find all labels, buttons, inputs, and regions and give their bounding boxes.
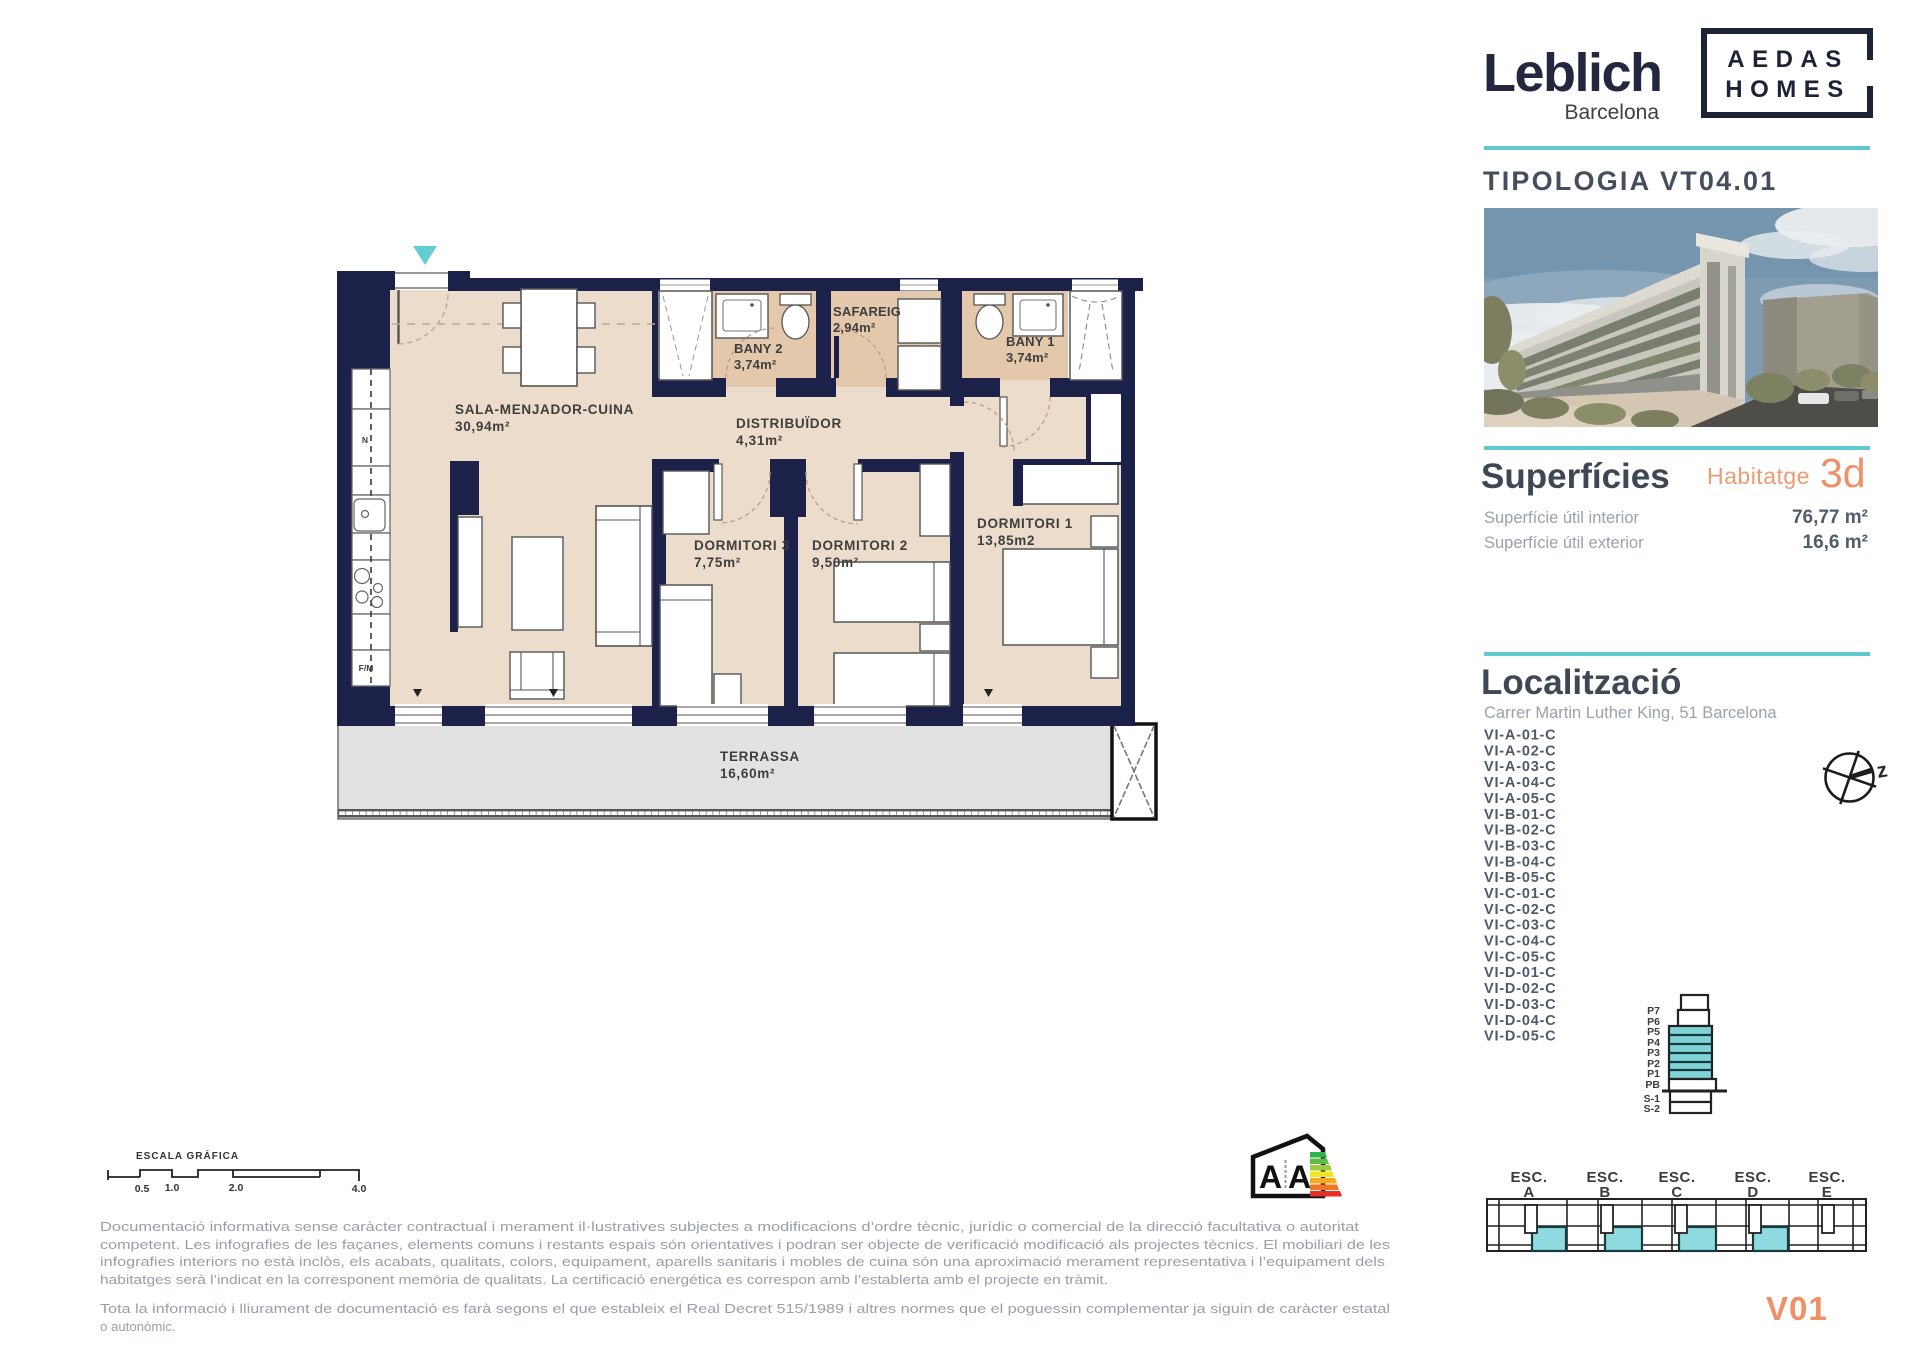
svg-text:VI-D-03-C: VI-D-03-C (1484, 997, 1556, 1013)
svg-text:o autonòmic.: o autonòmic. (100, 1319, 176, 1334)
svg-text:Barcelona: Barcelona (1564, 101, 1659, 124)
svg-text:F/M: F/M (359, 663, 374, 673)
svg-text:DISTRIBUÏDOR: DISTRIBUÏDOR (736, 416, 842, 431)
svg-text:1.0: 1.0 (165, 1182, 180, 1194)
svg-text:3d: 3d (1820, 450, 1866, 496)
svg-text:13,85m2: 13,85m2 (977, 533, 1035, 548)
svg-text:Documentació informativa sense: Documentació informativa sense caràcter … (100, 1219, 1359, 1234)
svg-text:S-2: S-2 (1644, 1103, 1661, 1115)
svg-text:VI-D-01-C: VI-D-01-C (1484, 965, 1556, 981)
svg-text:VI-A-02-C: VI-A-02-C (1484, 743, 1556, 759)
svg-text:VI-B-02-C: VI-B-02-C (1484, 823, 1556, 839)
svg-text:DORMITORI 1: DORMITORI 1 (977, 516, 1073, 531)
svg-text:Localització: Localització (1481, 663, 1681, 702)
svg-text:DORMITORI 2: DORMITORI 2 (812, 538, 908, 553)
svg-text:VI-C-04-C: VI-C-04-C (1484, 934, 1556, 950)
svg-text:PB: PB (1645, 1079, 1660, 1091)
svg-text:VI-B-05-C: VI-B-05-C (1484, 870, 1556, 886)
svg-text:76,77 m²: 76,77 m² (1792, 507, 1868, 528)
svg-text:2,94m²: 2,94m² (833, 320, 876, 335)
svg-text:VI-A-03-C: VI-A-03-C (1484, 759, 1556, 775)
svg-text:Habitatge: Habitatge (1707, 463, 1810, 489)
svg-text:Carrer Martin Luther King, 51: Carrer Martin Luther King, 51 Barcelona (1484, 704, 1777, 722)
svg-text:16,60m²: 16,60m² (720, 766, 775, 781)
svg-text:VI-C-05-C: VI-C-05-C (1484, 949, 1556, 965)
svg-text:VI-D-02-C: VI-D-02-C (1484, 981, 1556, 997)
svg-text:A: A (1288, 1159, 1311, 1195)
svg-text:Tota la informació i lliuramen: Tota la informació i lliurament de docum… (100, 1301, 1390, 1316)
svg-text:z: z (1875, 758, 1889, 782)
svg-text:0.5: 0.5 (135, 1183, 150, 1195)
svg-text:VI-D-04-C: VI-D-04-C (1484, 1013, 1556, 1029)
svg-text:V01: V01 (1766, 1290, 1828, 1327)
svg-text:4,31m²: 4,31m² (736, 433, 783, 448)
svg-text:VI-A-05-C: VI-A-05-C (1484, 791, 1556, 807)
svg-text:VI-A-01-C: VI-A-01-C (1484, 728, 1556, 744)
svg-text:SAFAREIG: SAFAREIG (833, 304, 901, 319)
svg-text:competent. Les infografies de: competent. Les infografies de les façane… (100, 1237, 1390, 1252)
svg-text:Superfície útil interior: Superfície útil interior (1484, 509, 1639, 527)
svg-text:BANY 2: BANY 2 (734, 341, 783, 356)
svg-text:N: N (362, 435, 368, 445)
svg-text:HOMES: HOMES (1725, 76, 1851, 103)
svg-text:VI-B-01-C: VI-B-01-C (1484, 807, 1556, 823)
svg-text:3,74m²: 3,74m² (734, 357, 777, 372)
svg-text:VI-C-03-C: VI-C-03-C (1484, 918, 1556, 934)
svg-text:A: A (1259, 1159, 1282, 1195)
svg-text:30,94m²: 30,94m² (455, 419, 510, 434)
svg-text:SALA-MENJADOR-CUINA: SALA-MENJADOR-CUINA (455, 402, 634, 417)
svg-text:Superfícies: Superfícies (1481, 457, 1670, 496)
svg-text:BANY 1: BANY 1 (1006, 334, 1055, 349)
svg-text:TERRASSA: TERRASSA (720, 749, 800, 764)
svg-text:2.0: 2.0 (229, 1182, 244, 1194)
svg-text:ESCALA GRÁFICA: ESCALA GRÁFICA (136, 1149, 239, 1162)
svg-text:TIPOLOGIA VT04.01: TIPOLOGIA VT04.01 (1483, 166, 1777, 196)
svg-text:16,6 m²: 16,6 m² (1803, 532, 1868, 553)
svg-text:Superfície útil exterior: Superfície útil exterior (1484, 534, 1644, 552)
svg-text:DORMITORI 3: DORMITORI 3 (694, 538, 790, 553)
svg-text:VI-B-04-C: VI-B-04-C (1484, 854, 1556, 870)
svg-text:3,74m²: 3,74m² (1006, 350, 1049, 365)
svg-text:VI-C-02-C: VI-C-02-C (1484, 902, 1556, 918)
svg-text:habitatges serà l’indicat en l: habitatges serà l’indicat en la correspo… (100, 1272, 1108, 1287)
svg-text:VI-D-05-C: VI-D-05-C (1484, 1029, 1556, 1045)
svg-text:9,50m²: 9,50m² (812, 555, 859, 570)
svg-text:infografies interiors no està: infografies interiors no està inclòs, el… (100, 1254, 1385, 1269)
svg-text:7,75m²: 7,75m² (694, 555, 741, 570)
svg-text:VI-A-04-C: VI-A-04-C (1484, 775, 1556, 791)
svg-text:VI-C-01-C: VI-C-01-C (1484, 886, 1556, 902)
svg-text:4.0: 4.0 (352, 1183, 367, 1195)
svg-text:Leblich: Leblich (1483, 43, 1662, 103)
svg-text:AEDAS: AEDAS (1727, 46, 1849, 73)
svg-text:VI-B-03-C: VI-B-03-C (1484, 839, 1556, 855)
